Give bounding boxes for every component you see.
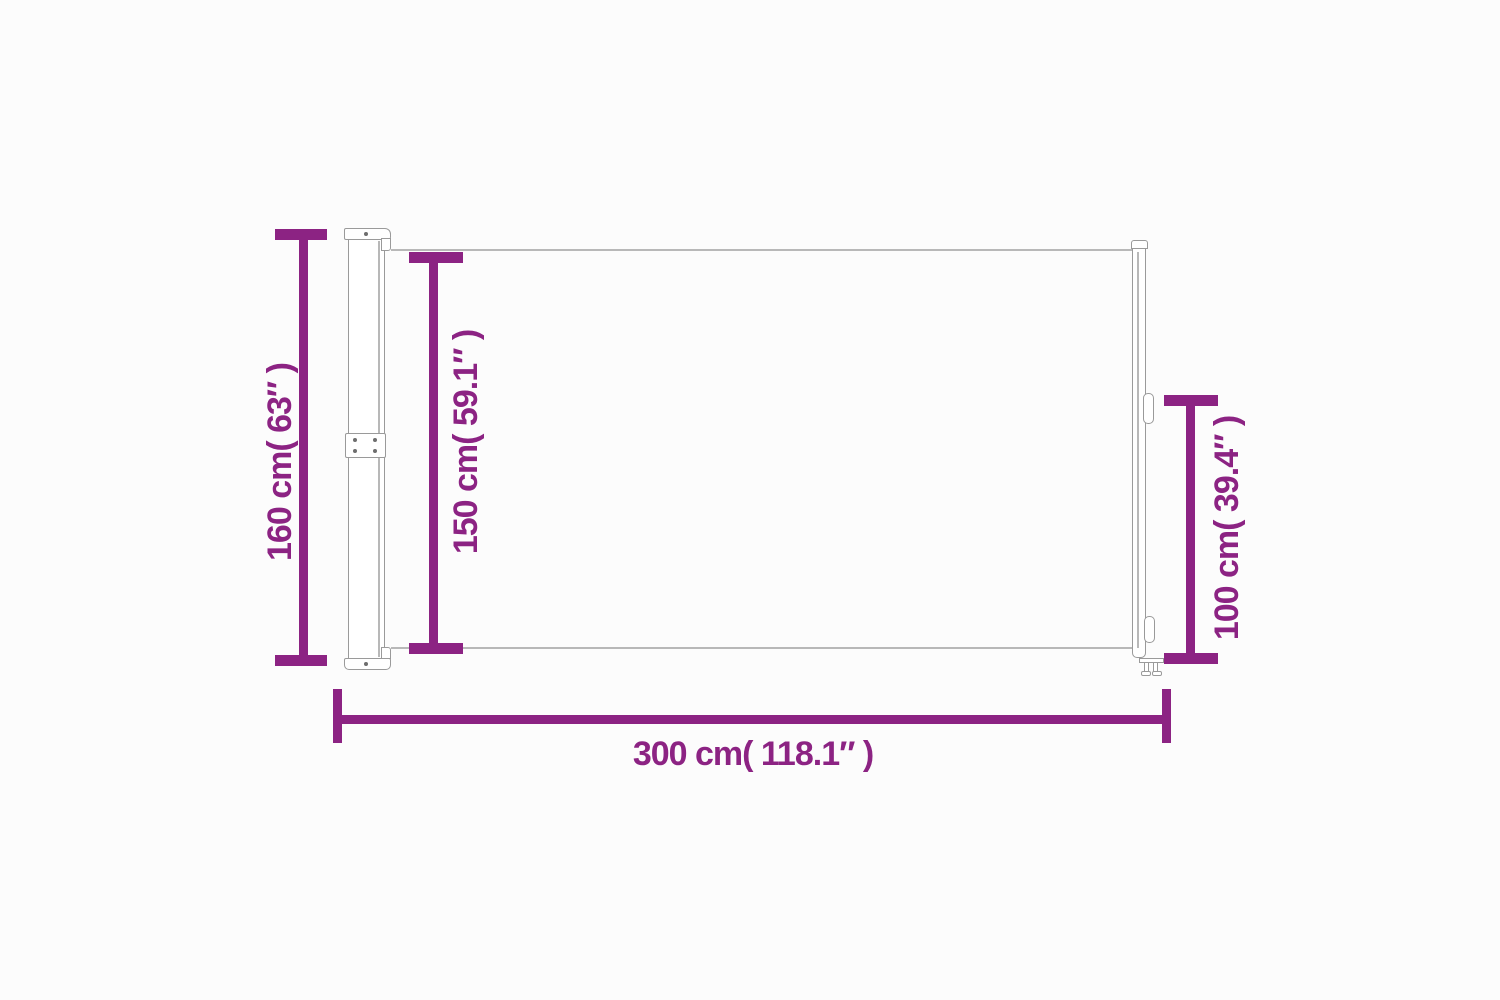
dim-fabric-height-label: 150 cm( 59.1″ ): [449, 330, 483, 554]
pole-foot-pad-left: [1141, 671, 1151, 676]
cassette-top-screw: [364, 232, 368, 236]
product-dimension-diagram: 160 cm( 63″ ) 150 cm( 59.1″ ) 100 cm( 39…: [0, 0, 1500, 1000]
cassette-wall-bracket: [345, 433, 386, 458]
fabric-top-edge: [391, 249, 1135, 251]
pole-foot-pad-right: [1152, 671, 1162, 676]
cassette-bottom-cap: [344, 658, 391, 670]
bracket-screw-bottom-left: [353, 449, 357, 453]
pole-upper-handle: [1143, 393, 1154, 424]
dim-pole-height-cap-bottom: [1164, 653, 1218, 664]
cassette-top-outlet: [381, 238, 391, 251]
bracket-screw-top-left: [353, 438, 357, 442]
dim-fabric-height-cap-bottom: [409, 643, 463, 654]
dim-total-height-line: [299, 231, 308, 661]
fabric-bottom-edge: [391, 647, 1134, 649]
pole-lower-handle: [1144, 616, 1155, 643]
dim-total-width-line: [337, 715, 1167, 724]
pole-foot-bar: [1139, 658, 1164, 663]
cassette-bottom-screw: [364, 662, 368, 666]
support-pole: [1132, 248, 1146, 658]
dim-pole-height-label: 100 cm( 39.4″ ): [1210, 416, 1244, 640]
dim-fabric-height-line: [429, 254, 438, 649]
bracket-screw-top-right: [373, 438, 377, 442]
dim-total-width-label: 300 cm( 118.1″ ): [633, 737, 873, 771]
dim-total-height-label: 160 cm( 63″ ): [263, 363, 297, 561]
dim-total-height-cap-bottom: [275, 655, 327, 666]
dim-total-width-cap-right: [1162, 689, 1171, 743]
pole-inner-line: [1137, 252, 1139, 648]
bracket-screw-bottom-right: [373, 449, 377, 453]
dim-pole-height-line: [1186, 397, 1195, 661]
